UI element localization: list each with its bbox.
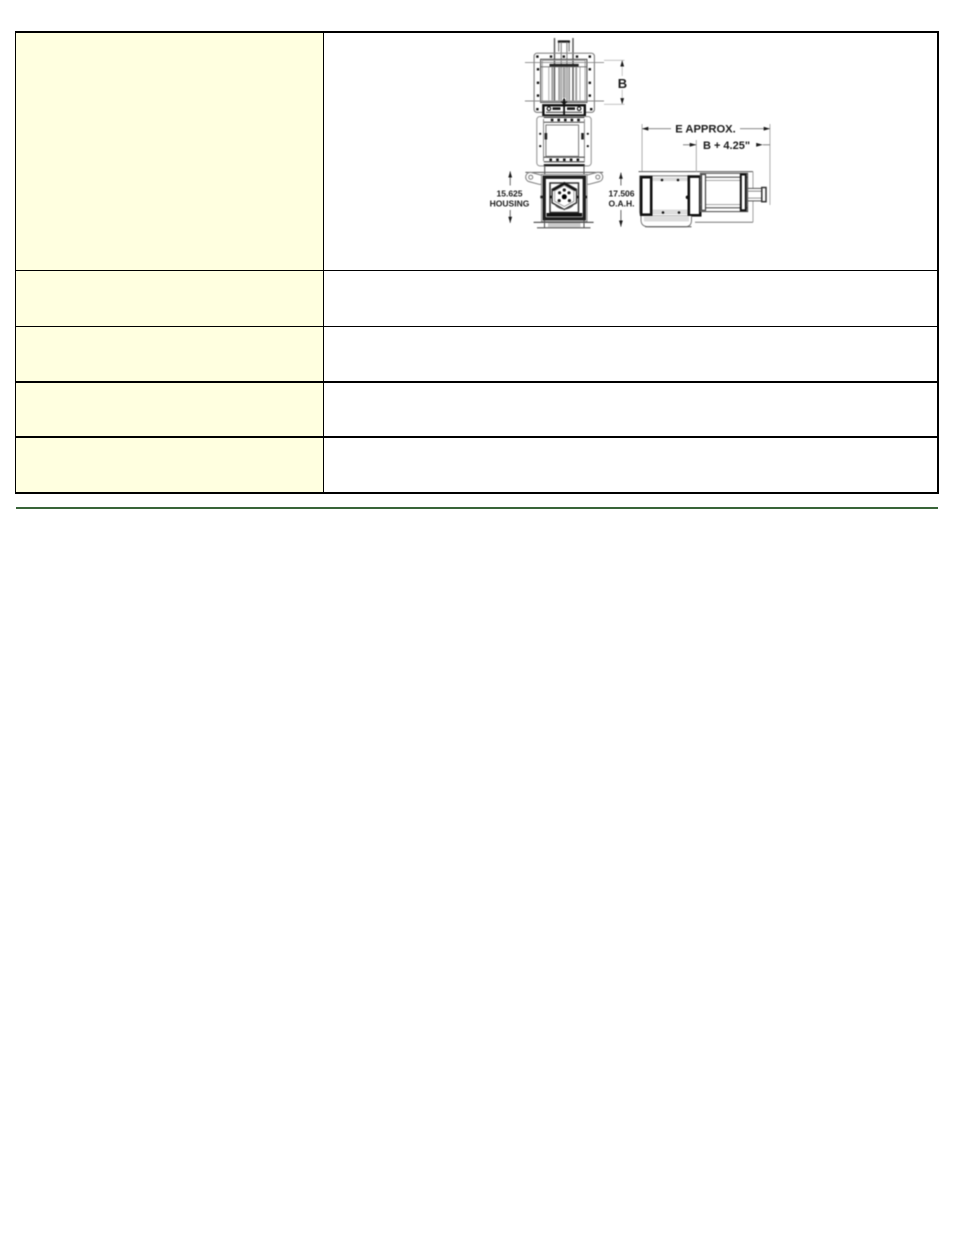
svg-text:15.625: 15.625 (497, 189, 523, 199)
svg-text:O.A.H.: O.A.H. (609, 199, 635, 209)
svg-text:B + 4.25": B + 4.25" (703, 140, 750, 152)
svg-text:17.506: 17.506 (609, 189, 635, 199)
svg-text:HOUSING: HOUSING (490, 199, 530, 209)
svg-text:B: B (618, 76, 627, 91)
svg-text:E APPROX.: E APPROX. (675, 124, 736, 136)
